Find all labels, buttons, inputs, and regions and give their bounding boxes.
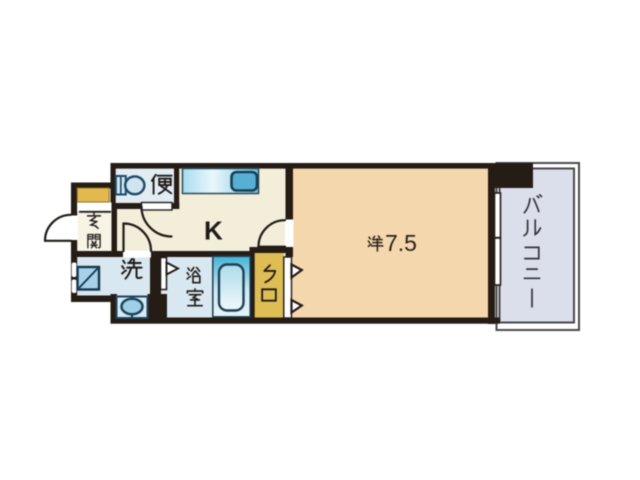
svg-text:7.5: 7.5 [385,230,417,256]
svg-text:K: K [204,216,223,246]
